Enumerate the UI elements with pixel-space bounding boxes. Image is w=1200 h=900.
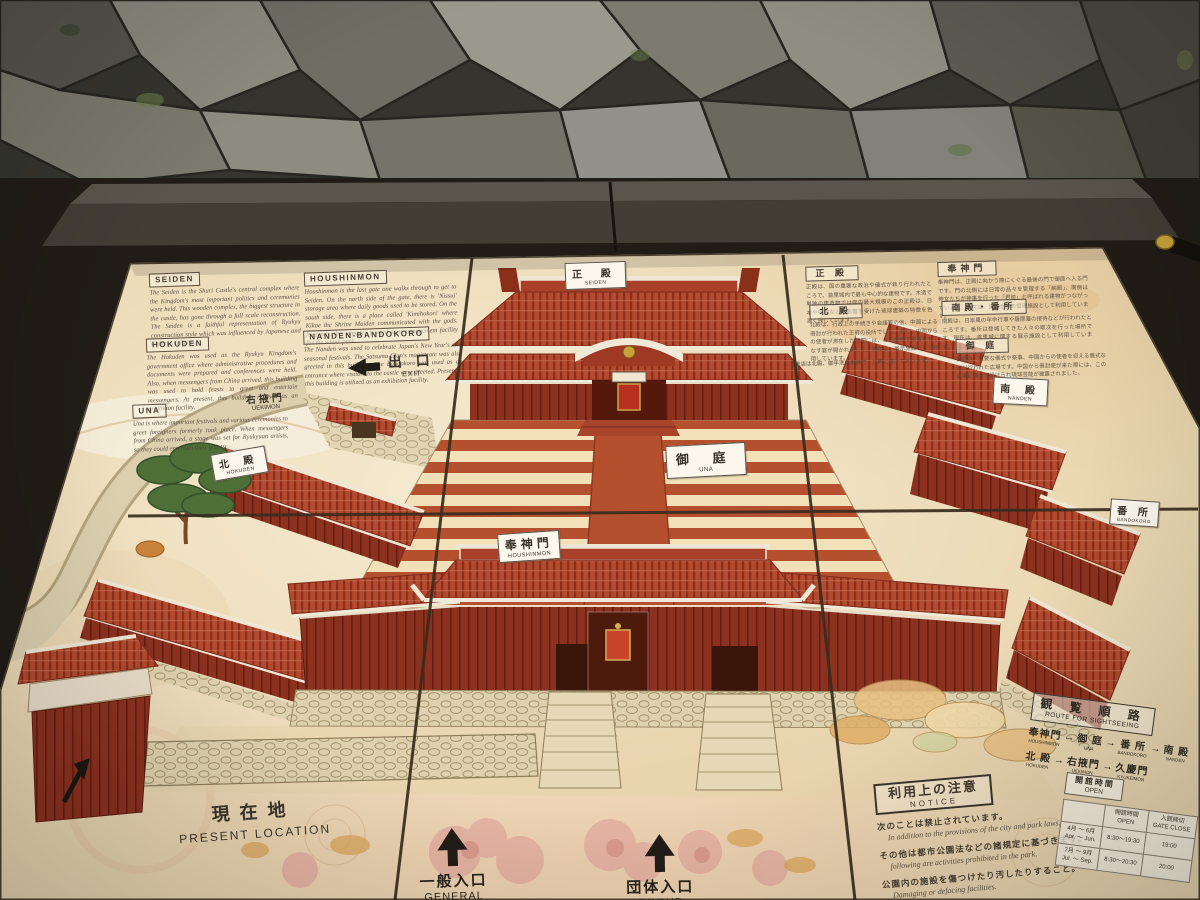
seiden-building [446, 268, 812, 436]
nanden-label: 南 殿 NANDEN [992, 377, 1048, 407]
seiden-label: 正 殿 SEIDEN [565, 261, 627, 290]
uekimon-label: 右掖門 UEKIMON [245, 389, 285, 413]
group-entrance-arrow-icon [642, 832, 677, 875]
route-arrow-icon: → [1150, 743, 1161, 755]
una-label: 御 庭 UNA [665, 442, 746, 479]
houshinmon-label: 奉神門 HOUSHINMON [497, 530, 561, 563]
yellow-knob [1156, 235, 1174, 249]
general-entrance-label: 一般入口 GENERAL [404, 824, 503, 900]
legend-ja-hokuden: 北 殿 北殿は、行政上の手続きや会議等の他、中国による冊封が行われた王府の役所で… [809, 298, 939, 364]
legend-ja-una: 御 庭 御庭は、重要な儀式や祭事、中国からの使者を迎える儀式などが行われた広場で… [955, 332, 1106, 381]
exit-arrow-icon [345, 355, 382, 379]
general-entrance-arrow-icon [435, 825, 470, 868]
route-arrow-icon: → [1105, 737, 1116, 749]
route-arrow-icon: → [1064, 732, 1075, 744]
bandokoro-label: 番 所 BANDOKORO [1109, 498, 1159, 527]
route-arrow-icon: → [1053, 755, 1064, 767]
photo-of-shuri-castle-map-sign: SEIDEN The Seiden is the Shuri Castle's … [0, 0, 1200, 900]
group-entrance-label: 団体入口 GROUP [611, 831, 708, 900]
exit-label: 出 口 EXIT [345, 350, 435, 382]
